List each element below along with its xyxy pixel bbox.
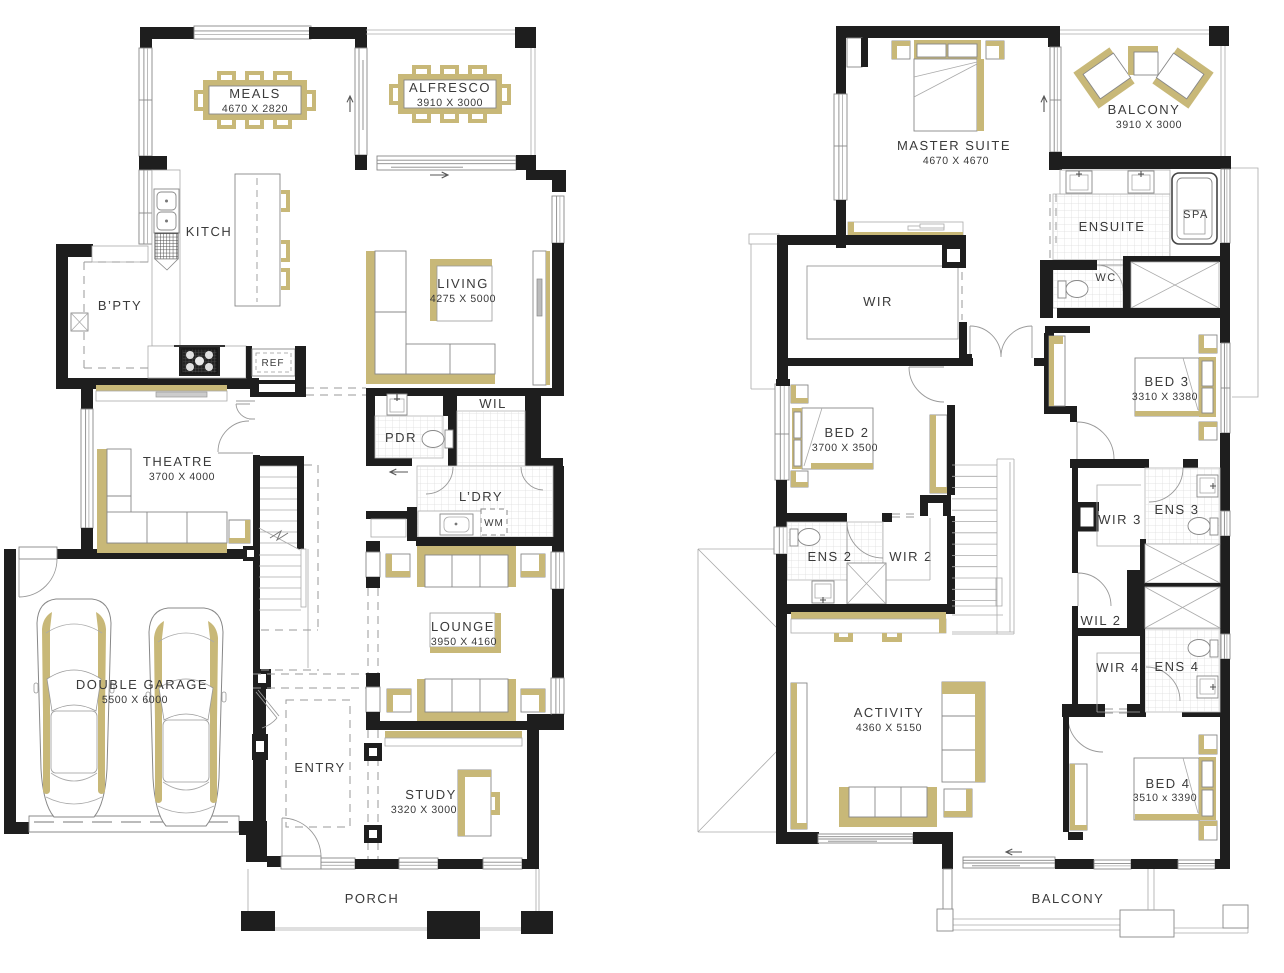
svg-text:4670 X 4670: 4670 X 4670 (923, 155, 989, 167)
svg-text:PDR: PDR (385, 430, 417, 445)
svg-text:SPA: SPA (1183, 209, 1209, 221)
svg-text:ENSUITE: ENSUITE (1079, 219, 1146, 234)
svg-text:4275 X 5000: 4275 X 5000 (430, 293, 496, 305)
svg-text:BED 2: BED 2 (824, 425, 869, 440)
svg-text:PORCH: PORCH (345, 891, 399, 906)
svg-text:THEATRE: THEATRE (143, 454, 213, 469)
svg-text:3910 X 3000: 3910 X 3000 (417, 97, 483, 109)
svg-text:5500 X 6000: 5500 X 6000 (102, 694, 168, 706)
svg-text:3700 X 4000: 3700 X 4000 (149, 471, 215, 483)
svg-text:4360 X 5150: 4360 X 5150 (856, 722, 922, 734)
svg-text:3910 X 3000: 3910 X 3000 (1116, 119, 1182, 131)
svg-text:3510 x 3390: 3510 x 3390 (1133, 792, 1197, 804)
svg-text:BED 3: BED 3 (1144, 374, 1189, 389)
svg-text:WIR 2: WIR 2 (889, 549, 933, 564)
svg-text:KITCH: KITCH (186, 224, 233, 239)
svg-text:MEALS: MEALS (229, 86, 281, 101)
svg-text:DOUBLE GARAGE: DOUBLE GARAGE (76, 677, 208, 692)
svg-text:WIR 4: WIR 4 (1096, 660, 1140, 675)
svg-text:WIL 2: WIL 2 (1081, 613, 1122, 628)
svg-text:LOUNGE: LOUNGE (431, 619, 495, 634)
svg-text:BED 4: BED 4 (1145, 776, 1190, 791)
svg-text:ACTIVITY: ACTIVITY (854, 705, 925, 720)
svg-text:WIL: WIL (479, 396, 507, 411)
svg-text:LIVING: LIVING (437, 276, 489, 291)
svg-text:REF: REF (262, 358, 285, 369)
svg-text:WIR 3: WIR 3 (1098, 512, 1142, 527)
svg-text:3950 X 4160: 3950 X 4160 (431, 636, 497, 648)
svg-text:3310 X 3380: 3310 X 3380 (1132, 391, 1198, 403)
svg-text:MASTER SUITE: MASTER SUITE (897, 138, 1011, 153)
svg-text:B’PTY: B’PTY (98, 298, 142, 313)
svg-text:ENS 2: ENS 2 (807, 549, 852, 564)
svg-text:4670 X 2820: 4670 X 2820 (222, 103, 288, 115)
svg-text:ALFRESCO: ALFRESCO (409, 80, 491, 95)
svg-text:ENS 3: ENS 3 (1154, 502, 1199, 517)
svg-text:BALCONY: BALCONY (1032, 891, 1105, 906)
svg-text:3320 X 3000: 3320 X 3000 (391, 804, 457, 816)
svg-text:3700 X 3500: 3700 X 3500 (812, 442, 878, 454)
svg-text:ENTRY: ENTRY (294, 760, 345, 775)
svg-text:WM: WM (484, 518, 504, 529)
svg-text:WIR: WIR (863, 294, 893, 309)
svg-text:L’DRY: L’DRY (459, 489, 503, 504)
svg-text:WC: WC (1095, 272, 1116, 284)
svg-text:BALCONY: BALCONY (1108, 102, 1181, 117)
svg-text:ENS 4: ENS 4 (1154, 659, 1199, 674)
svg-text:STUDY: STUDY (405, 787, 457, 802)
